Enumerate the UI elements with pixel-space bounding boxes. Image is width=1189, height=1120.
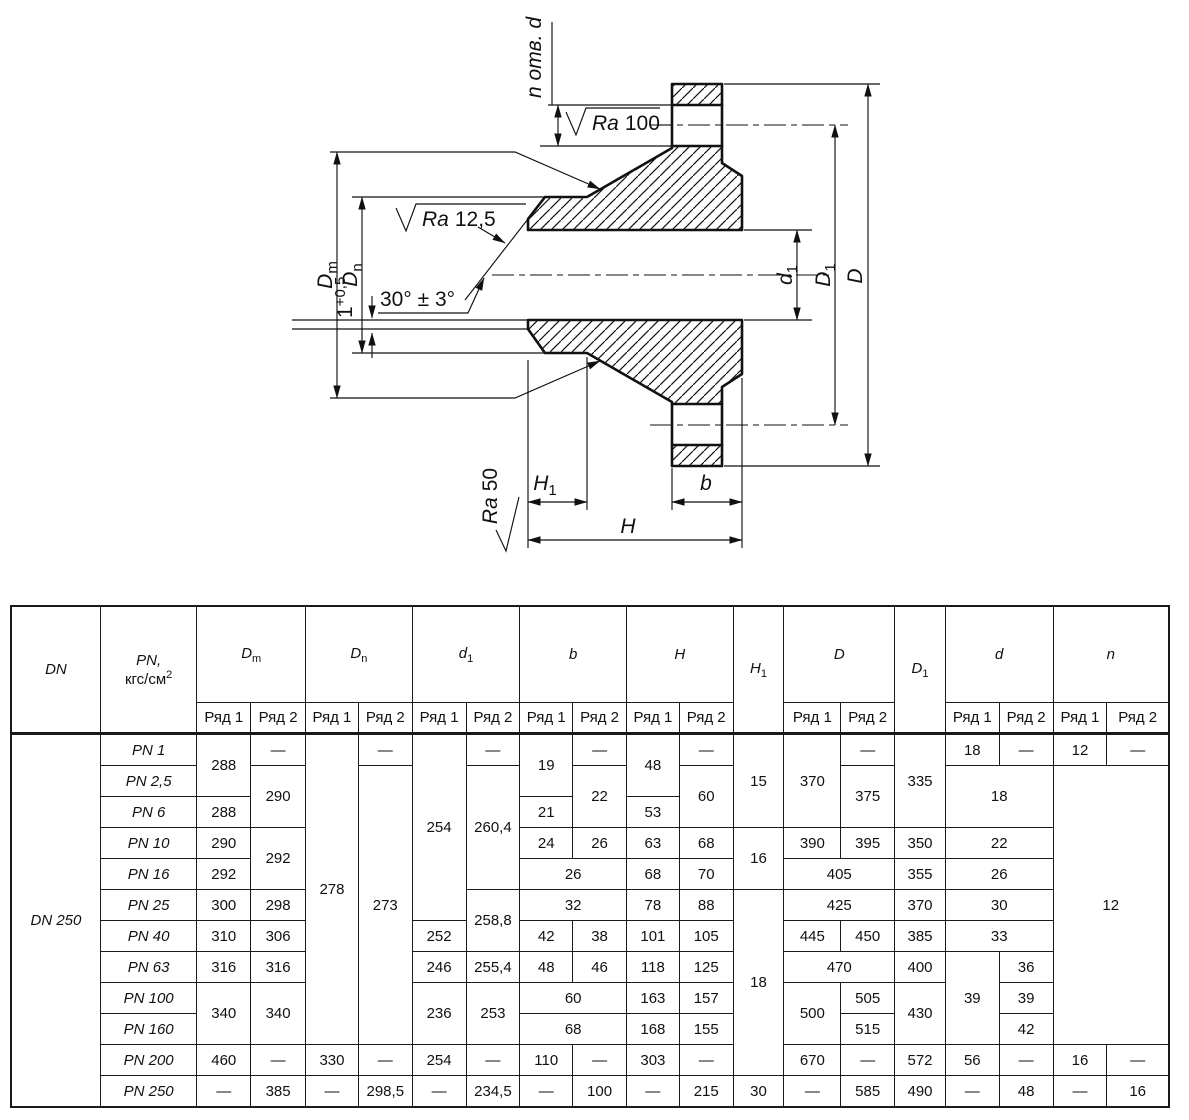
col-header-D: D — [784, 606, 895, 703]
value-cell: 290 — [197, 828, 251, 859]
page: { "drawing": { "labels": { "n_otv_d": "n… — [0, 0, 1189, 1120]
table-row: PN 25300298258,83278881842537030 — [11, 890, 1169, 921]
value-cell: — — [412, 1076, 466, 1108]
value-cell: 515 — [841, 1014, 895, 1045]
value-cell: 300 — [197, 890, 251, 921]
value-cell: 26 — [945, 859, 1053, 890]
table-row: PN 10290292242663681639039535022 — [11, 828, 1169, 859]
table-row: PN 1629226687040535526 — [11, 859, 1169, 890]
value-cell: 505 — [841, 983, 895, 1014]
table-row: PN 250—385—298,5—234,5—100—21530—585490—… — [11, 1076, 1169, 1108]
value-cell: 400 — [895, 952, 946, 983]
value-cell: 155 — [679, 1014, 733, 1045]
value-cell: 234,5 — [466, 1076, 520, 1108]
value-cell: — — [679, 734, 733, 766]
value-cell: 254 — [412, 734, 466, 921]
value-cell: 22 — [945, 828, 1053, 859]
value-cell: — — [945, 1076, 999, 1108]
value-cell: 22 — [573, 766, 627, 828]
value-cell: 253 — [466, 983, 520, 1045]
value-cell: 450 — [841, 921, 895, 952]
ryad-header: Ряд 1 — [945, 703, 999, 734]
value-cell: 385 — [895, 921, 946, 952]
value-cell: 16 — [733, 828, 784, 890]
angle-label: 30° ± 3° — [380, 288, 455, 311]
value-cell: 278 — [306, 734, 359, 1045]
col-header-h: H — [626, 606, 733, 703]
value-cell: 255,4 — [466, 952, 520, 983]
dm-label: Dm — [314, 261, 341, 289]
ryad-header: Ряд 2 — [251, 703, 306, 734]
value-cell: 260,4 — [466, 766, 520, 890]
value-cell: 215 — [679, 1076, 733, 1108]
value-cell: 340 — [197, 983, 251, 1045]
ryad-header: Ряд 1 — [306, 703, 359, 734]
ryad-header: Ряд 1 — [197, 703, 251, 734]
value-cell: — — [358, 1045, 412, 1076]
value-cell: — — [999, 734, 1053, 766]
value-cell: 288 — [197, 734, 251, 797]
table-row: PN 2,5290273260,422603751812 — [11, 766, 1169, 797]
value-cell: 316 — [251, 952, 306, 983]
value-cell: — — [573, 734, 627, 766]
table-row: DN 250PN 1288—278—254—19—48—15370—33518—… — [11, 734, 1169, 766]
flange-section-drawing: n отв. d Ra100 Ra12,5 30° ± 3° 1+0,5 Dm … — [0, 0, 1189, 595]
col-header-n: n — [1053, 606, 1169, 703]
ryad-header: Ряд 1 — [784, 703, 841, 734]
value-cell: 12 — [1053, 766, 1169, 1045]
value-cell: 585 — [841, 1076, 895, 1108]
value-cell: 254 — [412, 1045, 466, 1076]
value-cell: 118 — [626, 952, 679, 983]
value-cell: — — [251, 734, 306, 766]
value-cell: 53 — [626, 797, 679, 828]
pn-cell: PN 200 — [100, 1045, 196, 1076]
value-cell: 470 — [784, 952, 895, 983]
value-cell: 39 — [945, 952, 999, 1045]
value-cell: 32 — [520, 890, 627, 921]
dimension-table-wrap: DN PN,кгс/см2 Dm Dn d1 b H H1 D D1 d n Р… — [10, 605, 1170, 1108]
col-header-b: b — [520, 606, 627, 703]
value-cell: 385 — [251, 1076, 306, 1108]
value-cell: 316 — [197, 952, 251, 983]
table-row: PN 63316316246255,448461181254704003936 — [11, 952, 1169, 983]
value-cell: — — [626, 1076, 679, 1108]
value-cell: 370 — [895, 890, 946, 921]
value-cell: 68 — [520, 1014, 627, 1045]
value-cell: — — [1107, 734, 1169, 766]
value-cell: 168 — [626, 1014, 679, 1045]
ryad-header: Ряд 1 — [626, 703, 679, 734]
value-cell: 63 — [626, 828, 679, 859]
value-cell: 105 — [679, 921, 733, 952]
value-cell: 78 — [626, 890, 679, 921]
value-cell: 16 — [1053, 1045, 1107, 1076]
value-cell: 425 — [784, 890, 895, 921]
ra50-label: Ra50 — [479, 468, 502, 524]
col-header-pn: PN,кгс/см2 — [100, 606, 196, 734]
value-cell: 100 — [573, 1076, 627, 1108]
value-cell: 56 — [945, 1045, 999, 1076]
value-cell: — — [466, 734, 520, 766]
value-cell: — — [841, 1045, 895, 1076]
value-cell: — — [251, 1045, 306, 1076]
value-cell: — — [1053, 1076, 1107, 1108]
value-cell: 390 — [784, 828, 841, 859]
b-label: b — [700, 472, 712, 495]
pn-cell: PN 25 — [100, 890, 196, 921]
value-cell: — — [999, 1045, 1053, 1076]
value-cell: 490 — [895, 1076, 946, 1108]
ryad-header: Ряд 1 — [412, 703, 466, 734]
value-cell: 500 — [784, 983, 841, 1045]
value-cell: 405 — [784, 859, 895, 890]
value-cell: 88 — [679, 890, 733, 921]
value-cell: 30 — [733, 1076, 784, 1108]
value-cell: 288 — [197, 797, 251, 828]
pn-cell: PN 10 — [100, 828, 196, 859]
value-cell: 430 — [895, 983, 946, 1045]
ryad-header: Ряд 2 — [573, 703, 627, 734]
H-label: H — [620, 515, 636, 538]
value-cell: 68 — [626, 859, 679, 890]
value-cell: 236 — [412, 983, 466, 1045]
ryad-header: Ряд 2 — [358, 703, 412, 734]
value-cell: 303 — [626, 1045, 679, 1076]
value-cell: 70 — [679, 859, 733, 890]
value-cell: 350 — [895, 828, 946, 859]
value-cell: 46 — [573, 952, 627, 983]
ra100-label: Ra100 — [592, 112, 660, 135]
value-cell: 572 — [895, 1045, 946, 1076]
col-header-D1: D1 — [895, 606, 946, 734]
value-cell: — — [197, 1076, 251, 1108]
col-header-h1: H1 — [733, 606, 784, 734]
pn-cell: PN 40 — [100, 921, 196, 952]
value-cell: — — [306, 1076, 359, 1108]
value-cell: 60 — [520, 983, 627, 1014]
col-header-dnn: Dn — [306, 606, 413, 703]
value-cell: — — [784, 1076, 841, 1108]
value-cell: 395 — [841, 828, 895, 859]
value-cell: 310 — [197, 921, 251, 952]
value-cell: — — [466, 1045, 520, 1076]
value-cell: — — [520, 1076, 573, 1108]
value-cell: 298 — [251, 890, 306, 921]
pn-cell: PN 250 — [100, 1076, 196, 1108]
flange-dimension-table: DN PN,кгс/см2 Dm Dn d1 b H H1 D D1 d n Р… — [10, 605, 1170, 1108]
value-cell: 375 — [841, 766, 895, 828]
value-cell: — — [841, 734, 895, 766]
value-cell: 298,5 — [358, 1076, 412, 1108]
col-header-d1: d1 — [412, 606, 520, 703]
col-header-d-small: d — [945, 606, 1053, 703]
value-cell: 36 — [999, 952, 1053, 983]
value-cell: — — [1107, 1045, 1169, 1076]
value-cell: 26 — [520, 859, 627, 890]
value-cell: 370 — [784, 734, 841, 828]
value-cell: 110 — [520, 1045, 573, 1076]
value-cell: 157 — [679, 983, 733, 1014]
dn-label: Dn — [339, 263, 366, 287]
pn-cell: PN 6 — [100, 797, 196, 828]
H1-label: H1 — [533, 472, 557, 499]
value-cell: 445 — [784, 921, 841, 952]
ryad-header: Ряд 2 — [679, 703, 733, 734]
value-cell: 19 — [520, 734, 573, 797]
ra125-label: Ra12,5 — [422, 208, 496, 231]
value-cell: 335 — [895, 734, 946, 828]
table-row: PN 200460—330—254—110—303—670—57256—16— — [11, 1045, 1169, 1076]
pn-cell: PN 2,5 — [100, 766, 196, 797]
col-header-dm: Dm — [197, 606, 306, 703]
pn-cell: PN 160 — [100, 1014, 196, 1045]
pn-cell: PN 16 — [100, 859, 196, 890]
value-cell: 38 — [573, 921, 627, 952]
value-cell: 290 — [251, 766, 306, 828]
ryad-header: Ряд 2 — [999, 703, 1053, 734]
value-cell: 355 — [895, 859, 946, 890]
ryad-header: Ряд 1 — [520, 703, 573, 734]
ryad-header: Ряд 1 — [1053, 703, 1107, 734]
pn-cell: PN 1 — [100, 734, 196, 766]
value-cell: 16 — [1107, 1076, 1169, 1108]
ryad-header: Ряд 2 — [1107, 703, 1169, 734]
value-cell: 292 — [197, 859, 251, 890]
ryad-header: Ряд 2 — [466, 703, 520, 734]
value-cell: 670 — [784, 1045, 841, 1076]
value-cell: 24 — [520, 828, 573, 859]
value-cell: 18 — [733, 890, 784, 1076]
value-cell: 330 — [306, 1045, 359, 1076]
D-outer-label: D — [844, 268, 867, 283]
value-cell: 18 — [945, 766, 1053, 828]
dn-cell: DN 250 — [11, 734, 100, 1108]
value-cell: — — [573, 1045, 627, 1076]
value-cell: 18 — [945, 734, 999, 766]
value-cell: 12 — [1053, 734, 1107, 766]
value-cell: 101 — [626, 921, 679, 952]
value-cell: 68 — [679, 828, 733, 859]
table-row: PN 40310306252423810110544545038533 — [11, 921, 1169, 952]
value-cell: 125 — [679, 952, 733, 983]
value-cell: 48 — [999, 1076, 1053, 1108]
ryad-header: Ряд 2 — [841, 703, 895, 734]
pn-cell: PN 63 — [100, 952, 196, 983]
value-cell: 48 — [626, 734, 679, 797]
D1-bolt-circle-label: D1 — [812, 263, 839, 287]
value-cell: 460 — [197, 1045, 251, 1076]
value-cell: 340 — [251, 983, 306, 1045]
value-cell: 292 — [251, 828, 306, 890]
d1-bore-label: d1 — [774, 265, 801, 285]
n-holes-label: n отв. d — [523, 16, 546, 98]
value-cell: 30 — [945, 890, 1053, 921]
value-cell: 258,8 — [466, 890, 520, 952]
value-cell: 273 — [358, 766, 412, 1045]
value-cell: 39 — [999, 983, 1053, 1014]
value-cell: 60 — [679, 766, 733, 828]
value-cell: 42 — [520, 921, 573, 952]
value-cell: 15 — [733, 734, 784, 828]
value-cell: 42 — [999, 1014, 1053, 1045]
value-cell: — — [679, 1045, 733, 1076]
value-cell: 252 — [412, 921, 466, 952]
value-cell: 306 — [251, 921, 306, 952]
pn-cell: PN 100 — [100, 983, 196, 1014]
value-cell: 246 — [412, 952, 466, 983]
value-cell: 33 — [945, 921, 1053, 952]
value-cell: 21 — [520, 797, 573, 828]
col-header-dn: DN — [11, 606, 100, 734]
value-cell: — — [358, 734, 412, 766]
value-cell: 48 — [520, 952, 573, 983]
value-cell: 163 — [626, 983, 679, 1014]
value-cell: 26 — [573, 828, 627, 859]
